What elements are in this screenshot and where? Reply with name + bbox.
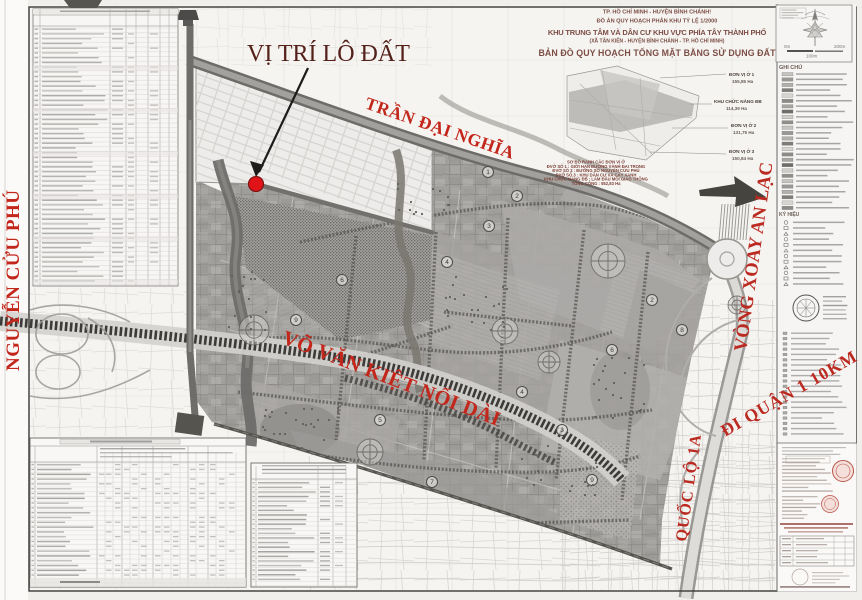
svg-text:1: 1	[486, 169, 490, 176]
svg-text:4: 4	[445, 259, 449, 266]
svg-text:BẢN ĐỒ QUY HOẠCH TỔNG MẶT BẰNG: BẢN ĐỒ QUY HOẠCH TỔNG MẶT BẰNG SỬ DỤNG Đ…	[538, 47, 776, 58]
svg-text:9: 9	[590, 477, 594, 484]
svg-text:5: 5	[378, 417, 382, 424]
svg-text:VỊ TRÍ LÔ ĐẤT: VỊ TRÍ LÔ ĐẤT	[247, 40, 410, 67]
svg-text:0m: 0m	[784, 44, 791, 49]
svg-text:2: 2	[515, 193, 519, 200]
svg-text:ĐƠN VỊ Ở 3: ĐƠN VỊ Ở 3	[729, 148, 755, 154]
svg-text:KHU CHỨC NĂNG ĐB: KHU CHỨC NĂNG ĐB	[714, 98, 762, 104]
svg-text:KHU TRUNG TÂM VÀ DÂN CƯ KHU VỰ: KHU TRUNG TÂM VÀ DÂN CƯ KHU VỰC PHÍA TÂY…	[548, 27, 767, 37]
svg-text:ĐƠN VỊ Ở 2: ĐƠN VỊ Ở 2	[731, 122, 757, 128]
svg-text:6: 6	[340, 277, 344, 284]
svg-text:NGUYỄN CỬU PHÚ: NGUYỄN CỬU PHÚ	[2, 189, 24, 371]
svg-text:4: 4	[520, 389, 524, 396]
svg-text:8: 8	[680, 327, 684, 334]
svg-text:TỔNG CỘNG : 552,83 Ha: TỔNG CỘNG : 552,83 Ha	[572, 181, 622, 186]
svg-text:200m: 200m	[834, 44, 846, 49]
svg-text:(XÃ TÂN KIÊN - HUYỆN BÌNH CHÁN: (XÃ TÂN KIÊN - HUYỆN BÌNH CHÁNH - TP. HỒ…	[590, 37, 725, 45]
svg-text:6: 6	[610, 347, 614, 354]
svg-text:ĐƠN VỊ Ở 1: ĐƠN VỊ Ở 1	[729, 71, 755, 77]
svg-text:7: 7	[430, 479, 434, 486]
svg-text:114,39 Ha: 114,39 Ha	[726, 106, 747, 111]
svg-text:9: 9	[294, 317, 298, 324]
svg-text:155,85 Ha: 155,85 Ha	[732, 79, 754, 84]
svg-text:GHI CHÚ: GHI CHÚ	[779, 64, 802, 71]
svg-text:131,75 Ha: 131,75 Ha	[733, 130, 755, 135]
svg-text:TP. HỒ CHÍ MINH - HUYỆN BÌNH C: TP. HỒ CHÍ MINH - HUYỆN BÌNH CHÁNH!	[603, 8, 711, 16]
svg-text:3: 3	[487, 223, 491, 230]
svg-text:100m: 100m	[806, 54, 818, 59]
svg-text:3: 3	[560, 427, 564, 434]
svg-text:150,84 Ha: 150,84 Ha	[732, 156, 754, 161]
svg-text:2: 2	[650, 297, 654, 304]
svg-text:ĐỒ ÁN QUY HOẠCH PHÂN KHU TỶ LỆ: ĐỒ ÁN QUY HOẠCH PHÂN KHU TỶ LỆ 1/2000	[597, 17, 718, 25]
svg-text:KÝ HIỆU: KÝ HIỆU	[779, 210, 800, 218]
